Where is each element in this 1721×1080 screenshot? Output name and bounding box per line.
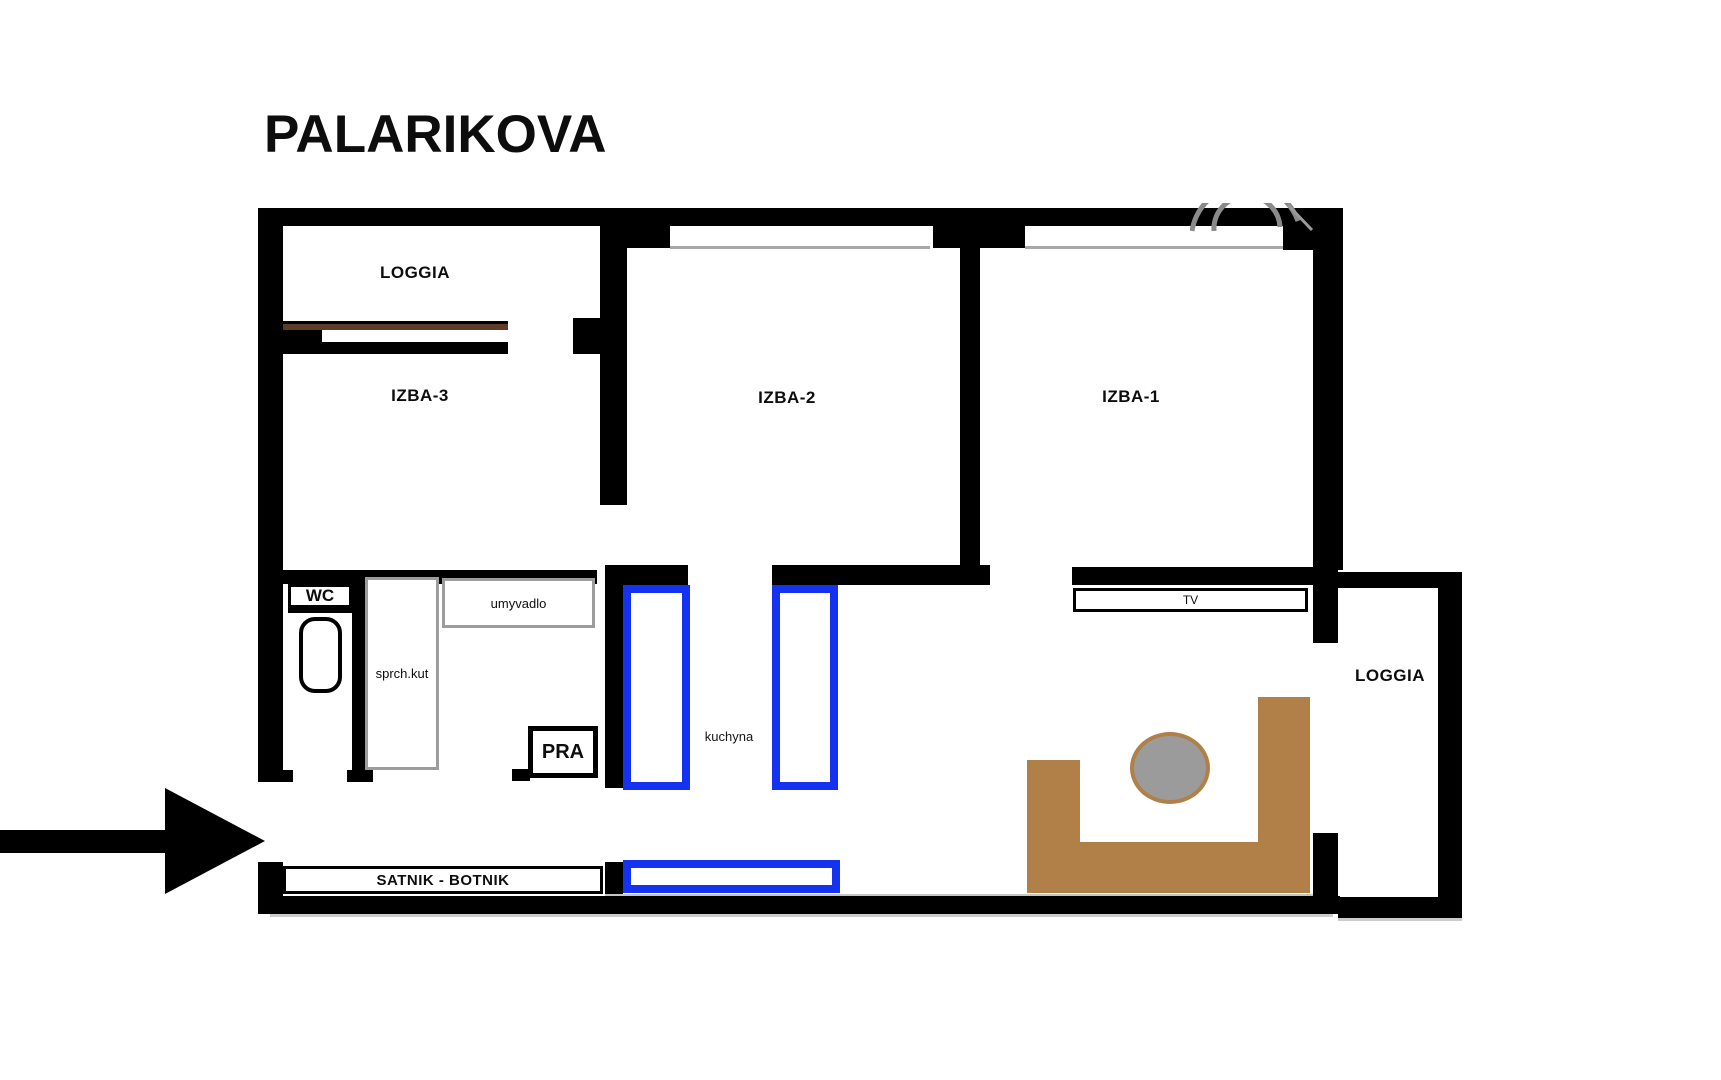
coffee-table bbox=[1130, 732, 1210, 804]
wall-wc-foot bbox=[347, 770, 373, 782]
room-label-izba3: IZBA-3 bbox=[350, 386, 490, 406]
loggia-right-wall-bottom bbox=[1338, 897, 1462, 918]
wall-lintel-between-windows bbox=[933, 223, 1025, 248]
page-title: PALARIKOVA bbox=[264, 104, 607, 165]
shadow-bottom-wall bbox=[270, 914, 1333, 917]
wall-divider-izba3-izba2 bbox=[600, 223, 627, 505]
kitchen-counter-bottom bbox=[623, 860, 840, 893]
loggia-right-wall-right bbox=[1438, 572, 1462, 918]
tv-label: TV bbox=[1183, 593, 1198, 607]
watermark-logo bbox=[1190, 203, 1320, 233]
wall-living-top bbox=[1072, 567, 1313, 585]
wall-divider-izba2-izba1 bbox=[960, 248, 980, 565]
kitchen-counter-right bbox=[772, 585, 838, 790]
sink-box: umyvadlo bbox=[442, 578, 595, 628]
shower-label: sprch.kut bbox=[376, 666, 429, 681]
wc-label-box: WC bbox=[288, 584, 352, 608]
room-label-loggia-top: LOGGIA bbox=[345, 263, 485, 283]
entrance-arrow-shaft bbox=[0, 830, 178, 853]
wall-kitchen-top-right bbox=[772, 565, 990, 585]
wall-left-foot bbox=[258, 770, 293, 782]
wc-label: WC bbox=[306, 586, 334, 606]
wall-lintel-izba2 bbox=[627, 223, 670, 248]
room-label-kuchyna: kuchyna bbox=[679, 729, 779, 744]
sink-label: umyvadlo bbox=[491, 596, 547, 611]
wall-top bbox=[258, 208, 1343, 226]
washer-label: PRA bbox=[542, 741, 584, 764]
wardrobe-label: SATNIK - BOTNIK bbox=[376, 872, 509, 889]
toilet bbox=[299, 617, 342, 693]
wall-kitchen-top-left bbox=[627, 565, 688, 585]
room-label-izba1: IZBA-1 bbox=[1061, 387, 1201, 407]
wall-bottom bbox=[258, 896, 1340, 914]
wall-satnik-stub bbox=[605, 862, 623, 896]
shower-box: sprch.kut bbox=[365, 577, 439, 770]
loggia-divider-left-stub bbox=[283, 330, 322, 354]
entrance-arrow-icon bbox=[165, 788, 265, 894]
wall-right-upper bbox=[1313, 208, 1343, 570]
kitchen-counter-left bbox=[623, 585, 690, 790]
wardrobe-box: SATNIK - BOTNIK bbox=[283, 866, 603, 894]
floor-plan-canvas: PALARIKOVA bbox=[0, 0, 1721, 1080]
floor-edge-line bbox=[605, 894, 1313, 896]
room-label-izba2: IZBA-2 bbox=[717, 388, 857, 408]
window-sill-izba1 bbox=[1025, 246, 1283, 249]
wall-wc-right bbox=[352, 584, 366, 770]
loggia-divider-inner-bar bbox=[322, 342, 508, 354]
shadow-loggia-right bbox=[1338, 918, 1462, 921]
wall-right-mid bbox=[1313, 570, 1338, 643]
wall-left-upper bbox=[258, 208, 283, 780]
wall-right-lower bbox=[1313, 833, 1338, 896]
washer-box: PRA bbox=[528, 726, 598, 778]
room-label-loggia-right: LOGGIA bbox=[1338, 666, 1442, 686]
sofa-right-arm bbox=[1258, 697, 1310, 893]
loggia-divider-right-stub bbox=[573, 318, 600, 354]
window-sill-izba2 bbox=[670, 246, 930, 249]
tv-box: TV bbox=[1073, 588, 1308, 612]
